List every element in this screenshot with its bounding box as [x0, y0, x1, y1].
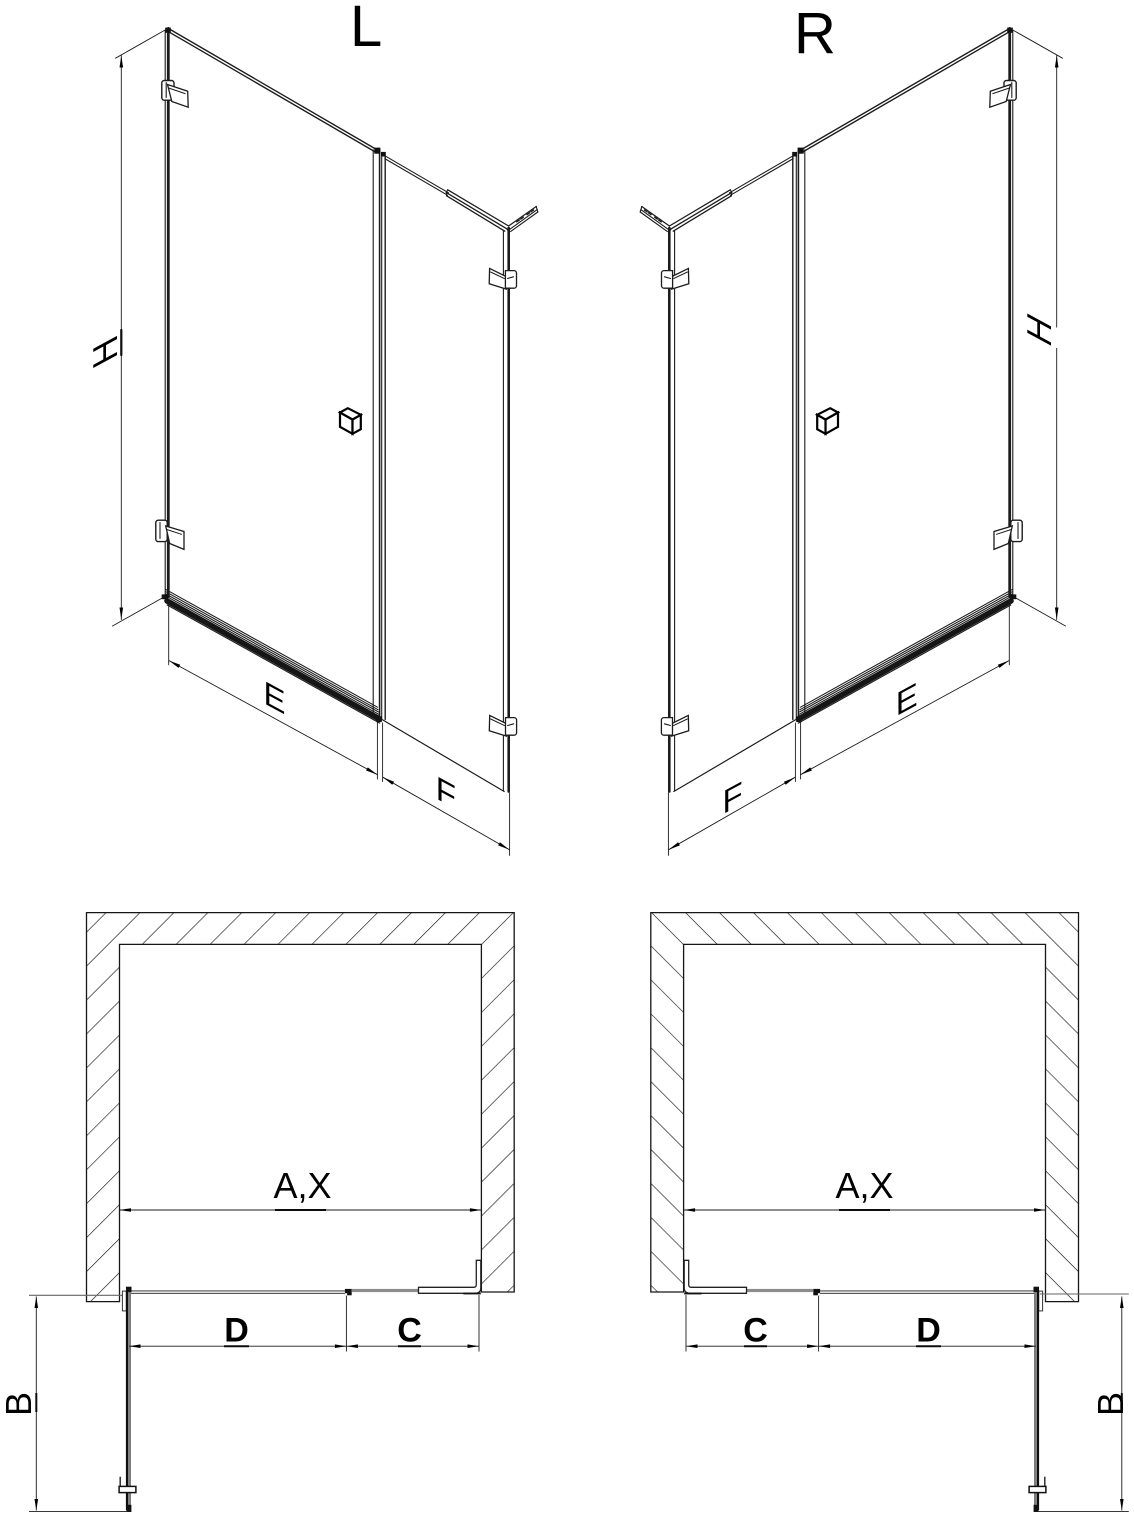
svg-text:B: B — [1090, 1392, 1131, 1416]
svg-text:C: C — [397, 1311, 422, 1349]
svg-text:B: B — [0, 1392, 39, 1416]
svg-text:A,X: A,X — [835, 1165, 893, 1206]
svg-text:C: C — [743, 1311, 768, 1349]
svg-text:D: D — [224, 1311, 249, 1349]
svg-text:R: R — [794, 1, 836, 66]
svg-text:A,X: A,X — [273, 1165, 331, 1206]
svg-text:D: D — [916, 1311, 941, 1349]
svg-text:L: L — [350, 0, 382, 59]
